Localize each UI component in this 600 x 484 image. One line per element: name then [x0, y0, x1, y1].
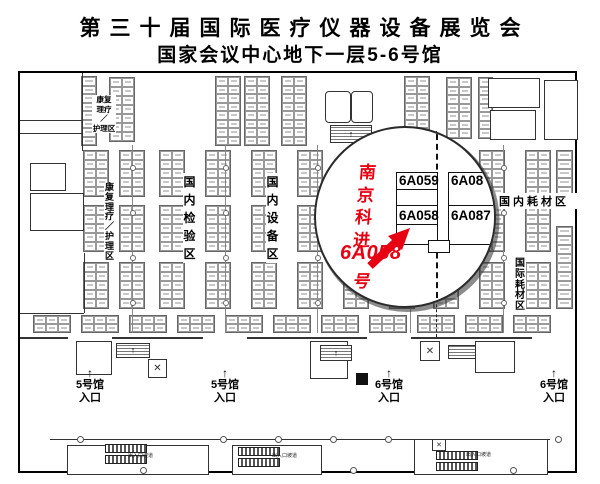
column-node	[501, 165, 507, 171]
booth-cluster	[226, 316, 262, 332]
hall-name: 5号馆	[67, 379, 113, 392]
booth-cell	[264, 272, 276, 281]
entrance-label-hall6-entrance-2: ↑6号馆入口	[531, 367, 577, 405]
booth-cell	[82, 324, 94, 332]
booth-cell	[94, 324, 106, 332]
up-arrow-icon: ↑	[202, 367, 248, 379]
booth-cell	[298, 272, 310, 281]
booth-cell	[218, 233, 230, 242]
booth-cell	[172, 290, 184, 299]
booth-cell	[245, 77, 257, 86]
booth-cell	[557, 263, 572, 272]
booth-cell	[526, 160, 538, 169]
booth-cell	[82, 316, 94, 324]
booth-cell	[132, 224, 144, 233]
up-arrow-icon: ↑	[334, 349, 339, 358]
wall	[20, 313, 84, 314]
booth-cell	[446, 299, 458, 308]
booth-cell	[447, 112, 459, 121]
booth-cell	[298, 290, 310, 299]
magnifier-circle: 6A059 6A058 6A08 6A087 南京科进 6A058 号	[314, 126, 496, 308]
booth-cell	[526, 263, 538, 272]
booth-cell	[84, 263, 96, 272]
booth-cell	[228, 77, 240, 86]
booth-cell	[228, 103, 240, 112]
corridor-wall	[411, 337, 532, 339]
booth-cell	[298, 215, 310, 224]
column-node	[315, 300, 321, 306]
booth-cell	[206, 169, 218, 178]
booth-cell	[245, 94, 257, 103]
booth-cell	[466, 324, 478, 332]
booth-cell	[294, 120, 306, 129]
booth-cell	[218, 242, 230, 251]
booth-cell	[310, 290, 322, 299]
entrance-text: 入口	[366, 392, 412, 405]
booth-cell	[310, 281, 322, 290]
booth-cluster	[206, 151, 230, 196]
booth-cell	[394, 324, 406, 332]
ramp-bar	[238, 458, 280, 467]
booth-cell	[538, 160, 550, 169]
booth-cell	[120, 281, 132, 290]
column-node	[130, 165, 136, 171]
aisle-marker	[428, 240, 450, 253]
booth-cell	[557, 254, 572, 263]
room	[475, 341, 515, 373]
booth-cell	[447, 104, 459, 113]
booth-cluster	[82, 316, 118, 332]
booth-cell	[252, 169, 264, 178]
booth-cell	[110, 78, 122, 87]
booth-cell	[514, 324, 526, 332]
booth-cell	[245, 128, 257, 137]
booth-cell	[206, 233, 218, 242]
booth-cell	[538, 169, 550, 178]
booth-cell	[172, 281, 184, 290]
booth-cell	[120, 151, 132, 160]
aisle-line	[225, 145, 226, 333]
booth-cell	[382, 316, 394, 324]
booth-cell	[82, 77, 96, 86]
booth-cell	[160, 215, 172, 224]
booth-cell	[264, 151, 276, 160]
booth-cell	[132, 178, 144, 187]
booth-cell	[226, 324, 238, 332]
booth-cell	[172, 160, 184, 169]
booth-cell	[442, 324, 454, 332]
booth-cell	[218, 178, 230, 187]
booth-cell	[447, 95, 459, 104]
booth-cell	[447, 78, 459, 87]
booth-cell	[557, 281, 572, 290]
booth-cluster	[526, 151, 550, 196]
booth-cell	[346, 324, 358, 332]
booth-cell	[459, 129, 471, 138]
booth-cell	[84, 290, 96, 299]
zone-label-rehab-nursing-top: 康复理疗／护理区	[92, 95, 116, 133]
up-arrow-icon: ↑	[131, 346, 136, 355]
booth-cell	[417, 103, 429, 112]
booth-cell	[459, 87, 471, 96]
booth-cell	[46, 324, 58, 332]
booth-cell	[480, 281, 492, 290]
booth-cluster	[526, 263, 550, 308]
booth-cell	[216, 111, 228, 120]
zone-label-line: 护理区	[92, 124, 116, 134]
booth-cell	[310, 272, 322, 281]
column-circle	[220, 436, 227, 443]
booth-cell	[478, 316, 490, 324]
booth-cell	[298, 233, 310, 242]
booth-cell	[298, 281, 310, 290]
booth-cell	[557, 227, 572, 236]
booth-cell	[252, 290, 264, 299]
entrance-label-hall5-entrance-2: ↑5号馆入口	[202, 367, 248, 405]
booth-cell	[310, 263, 322, 272]
hall-name: 6号馆	[366, 379, 412, 392]
column-node	[315, 255, 321, 261]
booth-cell	[298, 206, 310, 215]
booth-cell	[346, 316, 358, 324]
booth-cell	[480, 290, 492, 299]
booth-cell	[557, 290, 572, 299]
escalator-icon: ↑	[320, 345, 352, 361]
booth-cell	[228, 111, 240, 120]
column-node	[223, 300, 229, 306]
booth-cluster	[216, 77, 240, 145]
elevator-icon: ✕	[148, 359, 167, 378]
booth-cell	[160, 299, 172, 308]
booth-cell	[538, 151, 550, 160]
booth-cell	[160, 242, 172, 251]
booth-cell	[252, 160, 264, 169]
booth-cell	[132, 187, 144, 196]
booth-cell	[216, 86, 228, 95]
column-node	[315, 165, 321, 171]
column-circle	[510, 467, 517, 474]
booth-cell	[526, 242, 538, 251]
booth-cell	[418, 316, 430, 324]
column-circle	[275, 436, 282, 443]
booth-cell	[84, 187, 96, 196]
booth-cell	[257, 128, 269, 137]
booth-cell	[282, 94, 294, 103]
booth-cell	[218, 187, 230, 196]
escalator-icon: ↑	[116, 343, 150, 358]
booth-cluster	[34, 316, 70, 332]
booth-cell	[252, 233, 264, 242]
zone-label-intl-consumables: 国际耗材区	[514, 259, 526, 313]
booth-cell	[557, 236, 572, 245]
booth-cell	[96, 299, 108, 308]
zone-label-domestic-equipment: 国内设备区	[266, 173, 279, 263]
booth-cell	[132, 151, 144, 160]
aisle-line	[132, 145, 133, 333]
booth-cluster	[130, 316, 166, 332]
booth-cell	[160, 263, 172, 272]
booth-cell	[294, 103, 306, 112]
entrance-text: 入口	[67, 392, 113, 405]
booth-cell	[274, 316, 286, 324]
booth-cell	[120, 178, 132, 187]
column-circle	[350, 467, 357, 474]
escalator-icon	[448, 345, 476, 359]
booth-cell	[132, 290, 144, 299]
ramp-bar	[436, 462, 478, 471]
booth-cell	[94, 316, 106, 324]
booth-cell	[96, 169, 108, 178]
booth-cluster	[447, 78, 471, 138]
booth-cluster	[245, 77, 269, 145]
booth-cell	[216, 137, 228, 146]
booth-cell	[538, 263, 550, 272]
column-node	[223, 255, 229, 261]
booth-cell	[84, 178, 96, 187]
entrance-label-hall6-entrance-1: ↑6号馆入口	[366, 367, 412, 405]
column-node	[501, 300, 507, 306]
zone-label-rehab-nursing-left: 康复理疗／护理区	[104, 183, 115, 261]
booth-cluster	[84, 263, 108, 308]
booth-cluster	[282, 77, 306, 145]
booth-cell	[216, 128, 228, 137]
booth-cell	[120, 224, 132, 233]
corridor-wall	[112, 337, 203, 339]
booth-cluster	[160, 263, 184, 308]
booth-cell	[132, 233, 144, 242]
room	[490, 110, 536, 140]
booth-cell	[538, 215, 550, 224]
corridor-wall	[20, 337, 68, 339]
booth-cell	[538, 233, 550, 242]
booth-cell	[282, 137, 294, 146]
booth-cell	[172, 151, 184, 160]
column-circle	[77, 436, 84, 443]
booth-cell	[286, 316, 298, 324]
wall	[84, 253, 85, 313]
booth-cell	[34, 324, 46, 332]
booth-cell	[172, 263, 184, 272]
booth-cell	[252, 224, 264, 233]
booth-cell	[447, 121, 459, 130]
booth-cell	[447, 87, 459, 96]
booth-cell	[459, 104, 471, 113]
booth-cell	[245, 86, 257, 95]
room	[544, 80, 578, 140]
column-circle	[385, 436, 392, 443]
booth-cell	[245, 137, 257, 146]
booth-cell	[84, 215, 96, 224]
booth-cell	[46, 316, 58, 324]
booth-cell	[252, 299, 264, 308]
booth-cell	[294, 77, 306, 86]
booth-cell	[228, 137, 240, 146]
booth-cell	[294, 86, 306, 95]
booth-cell	[322, 316, 334, 324]
booth-cell	[557, 178, 572, 187]
booth-cell	[405, 86, 417, 95]
booth-cell	[190, 324, 202, 332]
booth-cell	[298, 151, 310, 160]
booth-cell	[84, 151, 96, 160]
booth-cell	[257, 120, 269, 129]
column-node	[130, 210, 136, 216]
booth-label-tl: 6A059	[396, 172, 437, 190]
ramp-label: 出入口坡道	[272, 452, 297, 459]
booth-cell	[294, 94, 306, 103]
booth-cell	[417, 111, 429, 120]
booth-cluster	[514, 316, 550, 332]
booth-cell	[294, 137, 306, 146]
booth-cell	[382, 324, 394, 332]
entrance-text: 入口	[202, 392, 248, 405]
booth-cell	[538, 178, 550, 187]
column-node	[130, 300, 136, 306]
booth-cluster	[370, 316, 406, 332]
elevator-icon: ✕	[420, 341, 440, 361]
booth-cell	[238, 324, 250, 332]
booth-cell	[252, 187, 264, 196]
hall-name: 5号馆	[202, 379, 248, 392]
booth-cell	[120, 233, 132, 242]
booth-cell	[160, 281, 172, 290]
booth-cell	[218, 224, 230, 233]
booth-cluster	[557, 227, 572, 308]
zone-label-domestic-testing: 国内检验区	[183, 173, 196, 263]
booth-cell	[218, 290, 230, 299]
booth-cell	[172, 299, 184, 308]
booth-cell	[206, 160, 218, 169]
booth-cell	[322, 324, 334, 332]
booth-cell	[84, 224, 96, 233]
booth-cell	[82, 137, 96, 146]
booth-cell	[132, 281, 144, 290]
booth-cell	[478, 324, 490, 332]
booth-cell	[526, 299, 538, 308]
booth-cell	[228, 128, 240, 137]
booth-cluster	[178, 316, 214, 332]
booth-cell	[160, 160, 172, 169]
booth-cell	[538, 281, 550, 290]
column-node	[223, 165, 229, 171]
booth-cell	[405, 111, 417, 120]
booth-cell	[264, 290, 276, 299]
booth-cell	[252, 263, 264, 272]
booth-cell	[557, 169, 572, 178]
booth-cell	[228, 86, 240, 95]
booth-cell	[228, 94, 240, 103]
booth-cell	[84, 206, 96, 215]
booth-cell	[34, 316, 46, 324]
booth-cell	[264, 160, 276, 169]
booth-cell	[160, 206, 172, 215]
booth-cell	[298, 242, 310, 251]
booth-cell	[538, 299, 550, 308]
booth-cell	[405, 77, 417, 86]
vent-icon: ✕	[432, 439, 446, 451]
booth-label-br: 6A087	[448, 207, 496, 224]
booth-cell	[344, 299, 356, 308]
booth-cell	[206, 272, 218, 281]
floor-plan: ↑↑✕↑✕✕康复理疗／护理区康复理疗／护理区国内检验区国内设备区国内耗材区国际耗…	[18, 71, 577, 473]
red-arrow-icon	[358, 220, 428, 276]
booth-cell	[417, 77, 429, 86]
booth-cell	[132, 215, 144, 224]
booth-cell	[84, 272, 96, 281]
booth-cluster	[274, 316, 310, 332]
booth-cell	[84, 169, 96, 178]
booth-cell	[282, 111, 294, 120]
page-subtitle: 国家会议中心地下一层5-6号馆	[0, 40, 600, 67]
booth-cell	[257, 86, 269, 95]
column-node	[130, 255, 136, 261]
booth-cell	[298, 324, 310, 332]
booth-cell	[245, 111, 257, 120]
booth-cell	[202, 316, 214, 324]
booth-cell	[178, 316, 190, 324]
booth-cell	[490, 316, 502, 324]
booth-cell	[84, 233, 96, 242]
booth-cell	[538, 224, 550, 233]
booth-cell	[84, 160, 96, 169]
booth-cell	[206, 290, 218, 299]
booth-cell	[526, 316, 538, 324]
booth-cell	[298, 263, 310, 272]
booth-cell	[252, 272, 264, 281]
booth-cell	[120, 215, 132, 224]
entrance-label-hall5-entrance-1: ↑5号馆入口	[67, 367, 113, 405]
booth-cell	[202, 324, 214, 332]
booth-cell	[557, 299, 572, 308]
booth-cell	[252, 242, 264, 251]
booth-cell	[160, 169, 172, 178]
booth-cell	[84, 299, 96, 308]
booth-cell	[206, 151, 218, 160]
booth-cluster	[160, 151, 184, 196]
booth-cell	[178, 324, 190, 332]
column-circle	[555, 436, 562, 443]
zone-label-line: ／	[92, 114, 116, 124]
booth-cell	[298, 187, 310, 196]
booth-cell	[218, 272, 230, 281]
wall	[82, 73, 83, 151]
room	[30, 193, 84, 231]
booth-cell	[252, 178, 264, 187]
booth-cell	[58, 324, 70, 332]
booth-cell	[405, 94, 417, 103]
booth-cell	[480, 272, 492, 281]
booth-cell	[264, 263, 276, 272]
booth-cell	[282, 103, 294, 112]
zone-label-line: 康复	[92, 95, 116, 105]
booth-cell	[526, 290, 538, 299]
booth-cell	[252, 281, 264, 290]
booth-cell	[459, 121, 471, 130]
booth-cell	[418, 324, 430, 332]
booth-cell	[417, 94, 429, 103]
booth-cell	[480, 151, 492, 160]
booth-cell	[282, 128, 294, 137]
booth-cell	[206, 187, 218, 196]
booth-cell	[142, 324, 154, 332]
booth-cell	[257, 77, 269, 86]
booth-cell	[206, 281, 218, 290]
up-arrow-icon: ↑	[349, 130, 354, 139]
booth-cell	[218, 263, 230, 272]
booth-cell	[154, 324, 166, 332]
hall-name: 6号馆	[531, 379, 577, 392]
up-arrow-icon: ↑	[67, 367, 113, 379]
